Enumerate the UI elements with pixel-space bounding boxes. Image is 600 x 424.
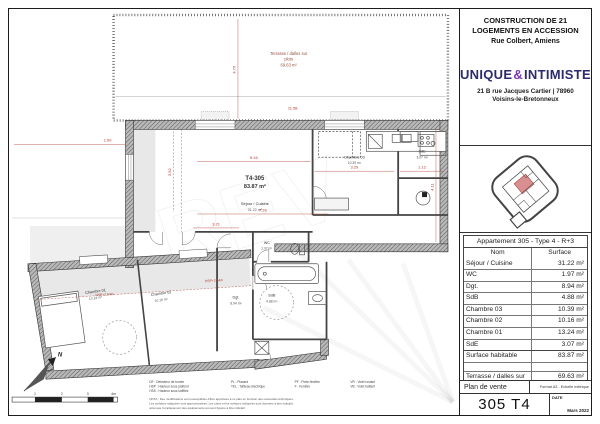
brand-logo: UNIQUE&INTIMISTE — [460, 67, 591, 82]
title-block: CONSTRUCTION DE 21 LOGEMENTS EN ACCESSIO… — [459, 9, 591, 415]
surface-row: Chambre 0113.24 m² — [464, 327, 587, 339]
brand-address-line1: 21 B rue Jacques Cartier | 78960 — [460, 88, 591, 96]
svg-text:3.07 m²: 3.07 m² — [416, 155, 428, 159]
brand-part2: INTIMISTE — [524, 67, 591, 82]
project-header: CONSTRUCTION DE 21 LOGEMENTS EN ACCESSIO… — [460, 9, 591, 145]
svg-text:8.94 m²: 8.94 m² — [230, 302, 242, 306]
surface-row: Surface habitable83.87 m² — [464, 350, 587, 362]
svg-text:1.99: 1.99 — [104, 137, 113, 142]
plan-legend: DF : Détecteur de fumée HSP : Hauteur so… — [149, 380, 375, 410]
svg-text:HSS : Hauteur sous soffites: HSS : Hauteur sous soffites — [149, 389, 188, 393]
svg-text:PF : Porte-fenêtre: PF : Porte-fenêtre — [295, 380, 320, 384]
unit-code: T4-305 — [245, 176, 265, 182]
floor-plan-svg: REV Terrasse / dalles sur plots 69.63 m² — [9, 9, 459, 415]
svg-text:Chambre 03: Chambre 03 — [344, 155, 365, 159]
surface-table-rows: Séjour / Cuisine31.22 m²WC1.97 m²Dgt.8.9… — [464, 259, 587, 380]
surface-table-title: Appartement 305 - Type 4 - R+3 — [464, 236, 587, 248]
svg-text:Dgt.: Dgt. — [233, 296, 240, 300]
date-box: DATE Mars 2022 — [549, 394, 591, 415]
column-header-name: Nom — [464, 248, 532, 259]
svg-text:3.92: 3.92 — [167, 168, 172, 176]
surface-row: SdB4.88 m² — [464, 292, 587, 304]
svg-text:2: 2 — [61, 392, 63, 396]
svg-text:HSP : Hauteur sous plafond: HSP : Hauteur sous plafond — [149, 385, 188, 389]
footer-row-unit: 305 T4 DATE Mars 2022 — [460, 393, 591, 415]
surface-table-header: Nom Surface — [464, 248, 587, 259]
terrace-area: 69.63 m² — [281, 63, 298, 68]
brand-address: 21 B rue Jacques Cartier | 78960 Voisins… — [460, 88, 591, 104]
svg-text:4.70: 4.70 — [231, 65, 236, 74]
svg-text:F : Fenêtre: F : Fenêtre — [295, 385, 311, 389]
bed-icon-2 — [39, 291, 86, 348]
surface-row: Séjour / Cuisine31.22 m² — [464, 259, 587, 270]
svg-text:SdB: SdB — [268, 294, 276, 298]
svg-text:Séjour / Cuisine: Séjour / Cuisine — [241, 201, 270, 206]
svg-text:1: 1 — [34, 392, 36, 396]
unit-area: 83.87 m² — [244, 183, 266, 190]
scale-bar: 1 2 3 4m — [12, 392, 117, 402]
svg-text:3.29: 3.29 — [351, 165, 360, 170]
svg-text:WC: WC — [264, 241, 270, 245]
svg-text:VR : Volet roulant: VR : Volet roulant — [350, 380, 375, 384]
shaft-icon — [255, 341, 269, 354]
date-value: Mars 2022 — [567, 408, 589, 413]
svg-text:Les surfaces indiquées sont ap: Les surfaces indiquées sont approximativ… — [149, 402, 293, 406]
doc-type: Plan de vente — [460, 384, 529, 391]
format-note: Format A3 - Echelle métrique — [529, 381, 591, 393]
project-title: CONSTRUCTION DE 21 LOGEMENTS EN ACCESSIO… — [460, 16, 591, 36]
footer-row-doctype: Plan de vente Format A3 - Echelle métriq… — [460, 380, 591, 393]
svg-text:3.21: 3.21 — [212, 221, 221, 226]
surface-row — [464, 362, 587, 371]
project-location: Rue Colbert, Amiens — [460, 38, 591, 45]
brand-address-line2: Voisins-le-Bretonneux — [460, 96, 591, 104]
page: REV Terrasse / dalles sur plots 69.63 m² — [0, 0, 600, 424]
svg-text:NOTA : Des modifications sont: NOTA : Des modifications sont susceptibl… — [149, 397, 293, 401]
svg-text:SdE: SdE — [418, 149, 426, 153]
surface-row: WC1.97 m² — [464, 269, 587, 281]
unit-reference: 305 T4 — [460, 394, 549, 415]
surface-row: Dgt.8.94 m² — [464, 281, 587, 293]
svg-text:4m: 4m — [111, 392, 116, 396]
svg-text:TEL : Tableau électrique: TEL : Tableau électrique — [231, 385, 265, 389]
terrace-label-2: plots — [284, 57, 293, 62]
terrace: Terrasse / dalles sur plots 69.63 m² — [114, 15, 448, 120]
surface-table: Appartement 305 - Type 4 - R+3 Nom Surfa… — [463, 235, 588, 380]
surface-row: SdE3.07 m² — [464, 339, 587, 351]
svg-text:10.16 m²: 10.16 m² — [154, 297, 169, 303]
floor-plan-area: REV Terrasse / dalles sur plots 69.63 m² — [9, 9, 459, 415]
brand-ampersand: & — [512, 67, 524, 82]
nota-text: NOTA : Des modifications sont susceptibl… — [149, 397, 293, 410]
closet — [315, 198, 349, 210]
svg-text:4.11: 4.11 — [429, 183, 434, 191]
svg-text:1.97 m²: 1.97 m² — [261, 246, 272, 250]
surface-table-section: Appartement 305 - Type 4 - R+3 Nom Surfa… — [460, 233, 591, 380]
svg-text:3: 3 — [87, 392, 89, 396]
svg-text:11.58: 11.58 — [288, 106, 298, 111]
surface-row: Terrasse / dalles sur plots69.63 m² — [464, 371, 587, 380]
svg-text:1.12: 1.12 — [418, 165, 426, 170]
brand-part1: UNIQUE — [460, 67, 512, 82]
svg-text:31.22 m²: 31.22 m² — [248, 208, 263, 212]
key-plan-thumbnail — [480, 147, 570, 231]
svg-text:10.39 m²: 10.39 m² — [348, 161, 362, 165]
terrace-label: Terrasse / dalles sur — [270, 51, 308, 56]
surface-row: Chambre 0210.16 m² — [464, 315, 587, 327]
column-header-surface: Surface — [532, 248, 587, 259]
svg-text:13.24 m²: 13.24 m² — [89, 295, 104, 301]
svg-text:VB : Volet battant: VB : Volet battant — [350, 385, 375, 389]
date-label: DATE — [552, 395, 563, 400]
svg-text:DF : Détecteur de fumée: DF : Détecteur de fumée — [149, 380, 184, 384]
bathtub-icon — [255, 264, 319, 284]
washbasin-icon — [309, 292, 327, 305]
svg-text:5.16: 5.16 — [250, 155, 259, 160]
svg-text:ainsi que l'emplacement des éq: ainsi que l'emplacement des équipements … — [149, 406, 245, 410]
svg-text:PL : Placard: PL : Placard — [231, 380, 248, 384]
north-label: N — [58, 352, 63, 358]
turning-circle-2 — [103, 320, 137, 354]
surface-row: Chambre 0310.39 m² — [464, 304, 587, 316]
svg-text:4.88 m²: 4.88 m² — [266, 300, 278, 304]
duct — [422, 192, 427, 197]
key-plan — [460, 145, 591, 233]
plan-sheet: REV Terrasse / dalles sur plots 69.63 m² — [8, 8, 592, 416]
